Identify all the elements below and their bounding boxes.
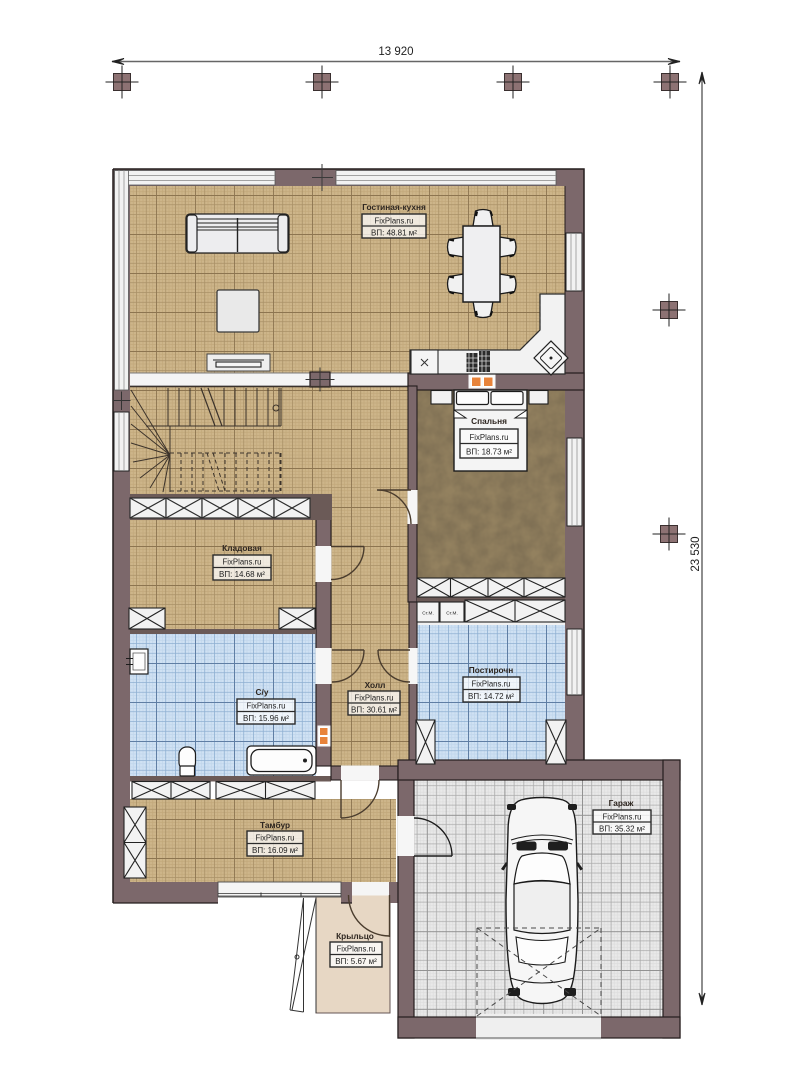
svg-text:FixPlans.ru: FixPlans.ru xyxy=(603,813,642,822)
svg-text:Крыльцо: Крыльцо xyxy=(336,931,374,941)
svg-text:FixPlans.ru: FixPlans.ru xyxy=(470,433,509,442)
svg-text:С/у: С/у xyxy=(256,687,269,697)
svg-text:ВП: 15.96 м²: ВП: 15.96 м² xyxy=(243,714,289,723)
svg-text:FixPlans.ru: FixPlans.ru xyxy=(375,217,414,226)
svg-text:FixPlans.ru: FixPlans.ru xyxy=(337,945,376,954)
svg-text:Гостиная-кухня: Гостиная-кухня xyxy=(362,202,426,212)
svg-text:13 920: 13 920 xyxy=(378,46,413,58)
svg-text:FixPlans.ru: FixPlans.ru xyxy=(472,680,511,689)
svg-text:Постирочн: Постирочн xyxy=(469,665,513,675)
svg-text:FixPlans.ru: FixPlans.ru xyxy=(355,694,394,703)
svg-text:Гараж: Гараж xyxy=(609,798,634,808)
svg-text:Кладовая: Кладовая xyxy=(222,543,262,553)
svg-text:FixPlans.ru: FixPlans.ru xyxy=(247,702,286,711)
svg-text:FixPlans.ru: FixPlans.ru xyxy=(256,834,295,843)
svg-text:FixPlans.ru: FixPlans.ru xyxy=(223,558,262,567)
svg-text:Холл: Холл xyxy=(365,680,386,690)
svg-text:Ст.М.: Ст.М. xyxy=(446,611,458,616)
svg-text:Тамбур: Тамбур xyxy=(260,820,290,830)
svg-text:ВП: 14.68 м²: ВП: 14.68 м² xyxy=(219,570,265,579)
svg-text:ВП: 16.09 м²: ВП: 16.09 м² xyxy=(252,846,298,855)
svg-text:ВП: 18.73 м²: ВП: 18.73 м² xyxy=(466,448,512,457)
svg-text:ВП: 48.81 м²: ВП: 48.81 м² xyxy=(371,229,417,238)
svg-text:ВП: 5.67 м²: ВП: 5.67 м² xyxy=(335,957,377,966)
svg-text:ВП: 14.72 м²: ВП: 14.72 м² xyxy=(468,692,514,701)
svg-text:Ст.М.: Ст.М. xyxy=(422,611,434,616)
svg-text:ВП: 35.32 м²: ВП: 35.32 м² xyxy=(599,825,645,834)
svg-text:Спальня: Спальня xyxy=(471,416,507,426)
svg-text:ВП: 30.61 м²: ВП: 30.61 м² xyxy=(351,706,397,715)
svg-text:23 530: 23 530 xyxy=(690,536,702,571)
